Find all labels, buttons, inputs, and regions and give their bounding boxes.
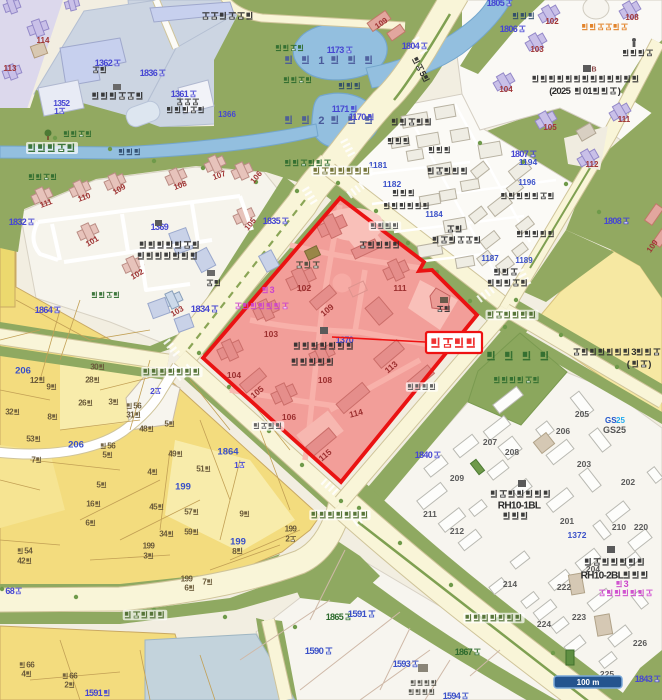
svg-text:51: 51 — [196, 465, 205, 474]
svg-text:25: 25 — [616, 416, 625, 425]
svg-text:(2025: (2025 — [549, 86, 571, 97]
svg-text:224: 224 — [537, 619, 551, 629]
svg-text:53: 53 — [26, 435, 35, 444]
svg-text:54: 54 — [24, 547, 33, 556]
svg-text:31: 31 — [126, 411, 135, 420]
svg-text:111: 111 — [618, 115, 631, 124]
svg-text:26: 26 — [78, 399, 87, 408]
svg-text:112: 112 — [586, 160, 599, 169]
svg-text:1864: 1864 — [35, 305, 53, 315]
svg-text:220: 220 — [634, 522, 648, 532]
svg-text:210: 210 — [612, 522, 626, 532]
svg-text:34: 34 — [159, 530, 168, 539]
svg-text:66: 66 — [26, 661, 35, 670]
svg-text:102: 102 — [297, 283, 311, 293]
svg-text:1361: 1361 — [171, 89, 189, 99]
svg-text:48: 48 — [139, 425, 148, 434]
svg-text:222: 222 — [557, 582, 571, 592]
svg-text:1805: 1805 — [487, 0, 505, 8]
svg-text:1832: 1832 — [9, 217, 27, 227]
svg-text:1835: 1835 — [263, 216, 281, 226]
svg-text:30: 30 — [90, 363, 99, 372]
svg-text:111: 111 — [393, 283, 407, 293]
svg-text:1808: 1808 — [604, 216, 622, 226]
svg-text:1594: 1594 — [443, 691, 461, 700]
svg-text:104: 104 — [499, 85, 513, 94]
svg-text:3: 3 — [624, 579, 629, 589]
svg-text:207: 207 — [483, 437, 497, 447]
svg-text:100 m: 100 m — [577, 678, 600, 687]
svg-text:B: B — [591, 67, 596, 74]
svg-text:211: 211 — [423, 509, 437, 519]
svg-text:201: 201 — [560, 516, 574, 526]
svg-text:3: 3 — [631, 347, 636, 358]
svg-text:1194: 1194 — [519, 157, 538, 167]
svg-text:42: 42 — [17, 557, 26, 566]
svg-text:1170: 1170 — [349, 112, 367, 122]
svg-text:12: 12 — [30, 375, 39, 385]
svg-text:1182: 1182 — [383, 179, 402, 189]
svg-text:1189: 1189 — [515, 256, 533, 265]
svg-text:1590: 1590 — [305, 646, 324, 657]
svg-text:106: 106 — [282, 412, 296, 422]
svg-text:199: 199 — [181, 575, 194, 584]
svg-text:212: 212 — [450, 526, 464, 536]
svg-text:28: 28 — [85, 376, 94, 385]
svg-text:56: 56 — [107, 442, 116, 451]
svg-text:199: 199 — [285, 525, 298, 534]
svg-text:1187: 1187 — [481, 254, 499, 263]
svg-text:199: 199 — [175, 481, 191, 492]
svg-text:49: 49 — [168, 450, 177, 459]
svg-text:1591: 1591 — [85, 688, 103, 698]
svg-text:199: 199 — [143, 542, 156, 551]
svg-text:206: 206 — [68, 439, 84, 450]
svg-text:108: 108 — [625, 13, 639, 22]
svg-text:1591: 1591 — [348, 609, 368, 620]
svg-text:1840: 1840 — [415, 450, 433, 460]
svg-text:103: 103 — [530, 45, 544, 54]
svg-text:1173: 1173 — [327, 45, 345, 55]
svg-text:45: 45 — [149, 503, 158, 512]
svg-text:114: 114 — [37, 36, 50, 45]
svg-text:16: 16 — [86, 500, 95, 509]
svg-text:32: 32 — [5, 408, 14, 417]
svg-text:223: 223 — [572, 612, 586, 622]
svg-text:226: 226 — [633, 638, 647, 648]
svg-text:1196: 1196 — [518, 178, 536, 187]
svg-text:66: 66 — [69, 672, 78, 681]
svg-text:59: 59 — [184, 528, 193, 537]
svg-text:3: 3 — [270, 285, 275, 295]
svg-text:1867: 1867 — [455, 647, 473, 657]
svg-text:1834: 1834 — [191, 304, 211, 315]
svg-text:208: 208 — [505, 447, 519, 457]
svg-text:206: 206 — [15, 365, 31, 376]
svg-text:209: 209 — [450, 473, 464, 483]
svg-text:1864: 1864 — [217, 446, 239, 457]
svg-text:105: 105 — [543, 123, 557, 132]
svg-text:1362: 1362 — [95, 58, 113, 68]
svg-text:1366: 1366 — [218, 110, 236, 119]
svg-text:RH10-2BL: RH10-2BL — [581, 570, 624, 581]
svg-text:01: 01 — [583, 86, 594, 97]
svg-text:202: 202 — [621, 477, 635, 487]
svg-text:1184: 1184 — [425, 210, 443, 219]
svg-text:102: 102 — [545, 17, 559, 26]
svg-text:103: 103 — [264, 329, 278, 339]
svg-text:RH10-1BL: RH10-1BL — [498, 500, 541, 511]
svg-text:GS25: GS25 — [603, 425, 626, 435]
svg-text:1865: 1865 — [326, 612, 344, 622]
svg-text:1593: 1593 — [393, 659, 411, 669]
svg-text:1836: 1836 — [140, 68, 158, 78]
svg-text:57: 57 — [184, 508, 193, 517]
svg-text:1806: 1806 — [500, 24, 518, 34]
svg-text:68: 68 — [5, 586, 14, 596]
svg-text:1171: 1171 — [332, 104, 350, 114]
svg-text:113: 113 — [4, 64, 17, 73]
svg-text:203: 203 — [577, 459, 591, 469]
svg-text:56: 56 — [133, 402, 142, 411]
svg-text:104: 104 — [227, 370, 241, 380]
svg-text:1372: 1372 — [568, 530, 587, 540]
svg-text:2: 2 — [318, 115, 324, 127]
svg-text:205: 205 — [575, 409, 589, 419]
svg-text:1: 1 — [318, 55, 324, 67]
svg-text:214: 214 — [503, 579, 517, 589]
svg-text:206: 206 — [556, 426, 570, 436]
svg-text:1804: 1804 — [402, 41, 420, 51]
svg-text:1843: 1843 — [635, 674, 653, 684]
svg-text:108: 108 — [318, 375, 332, 385]
